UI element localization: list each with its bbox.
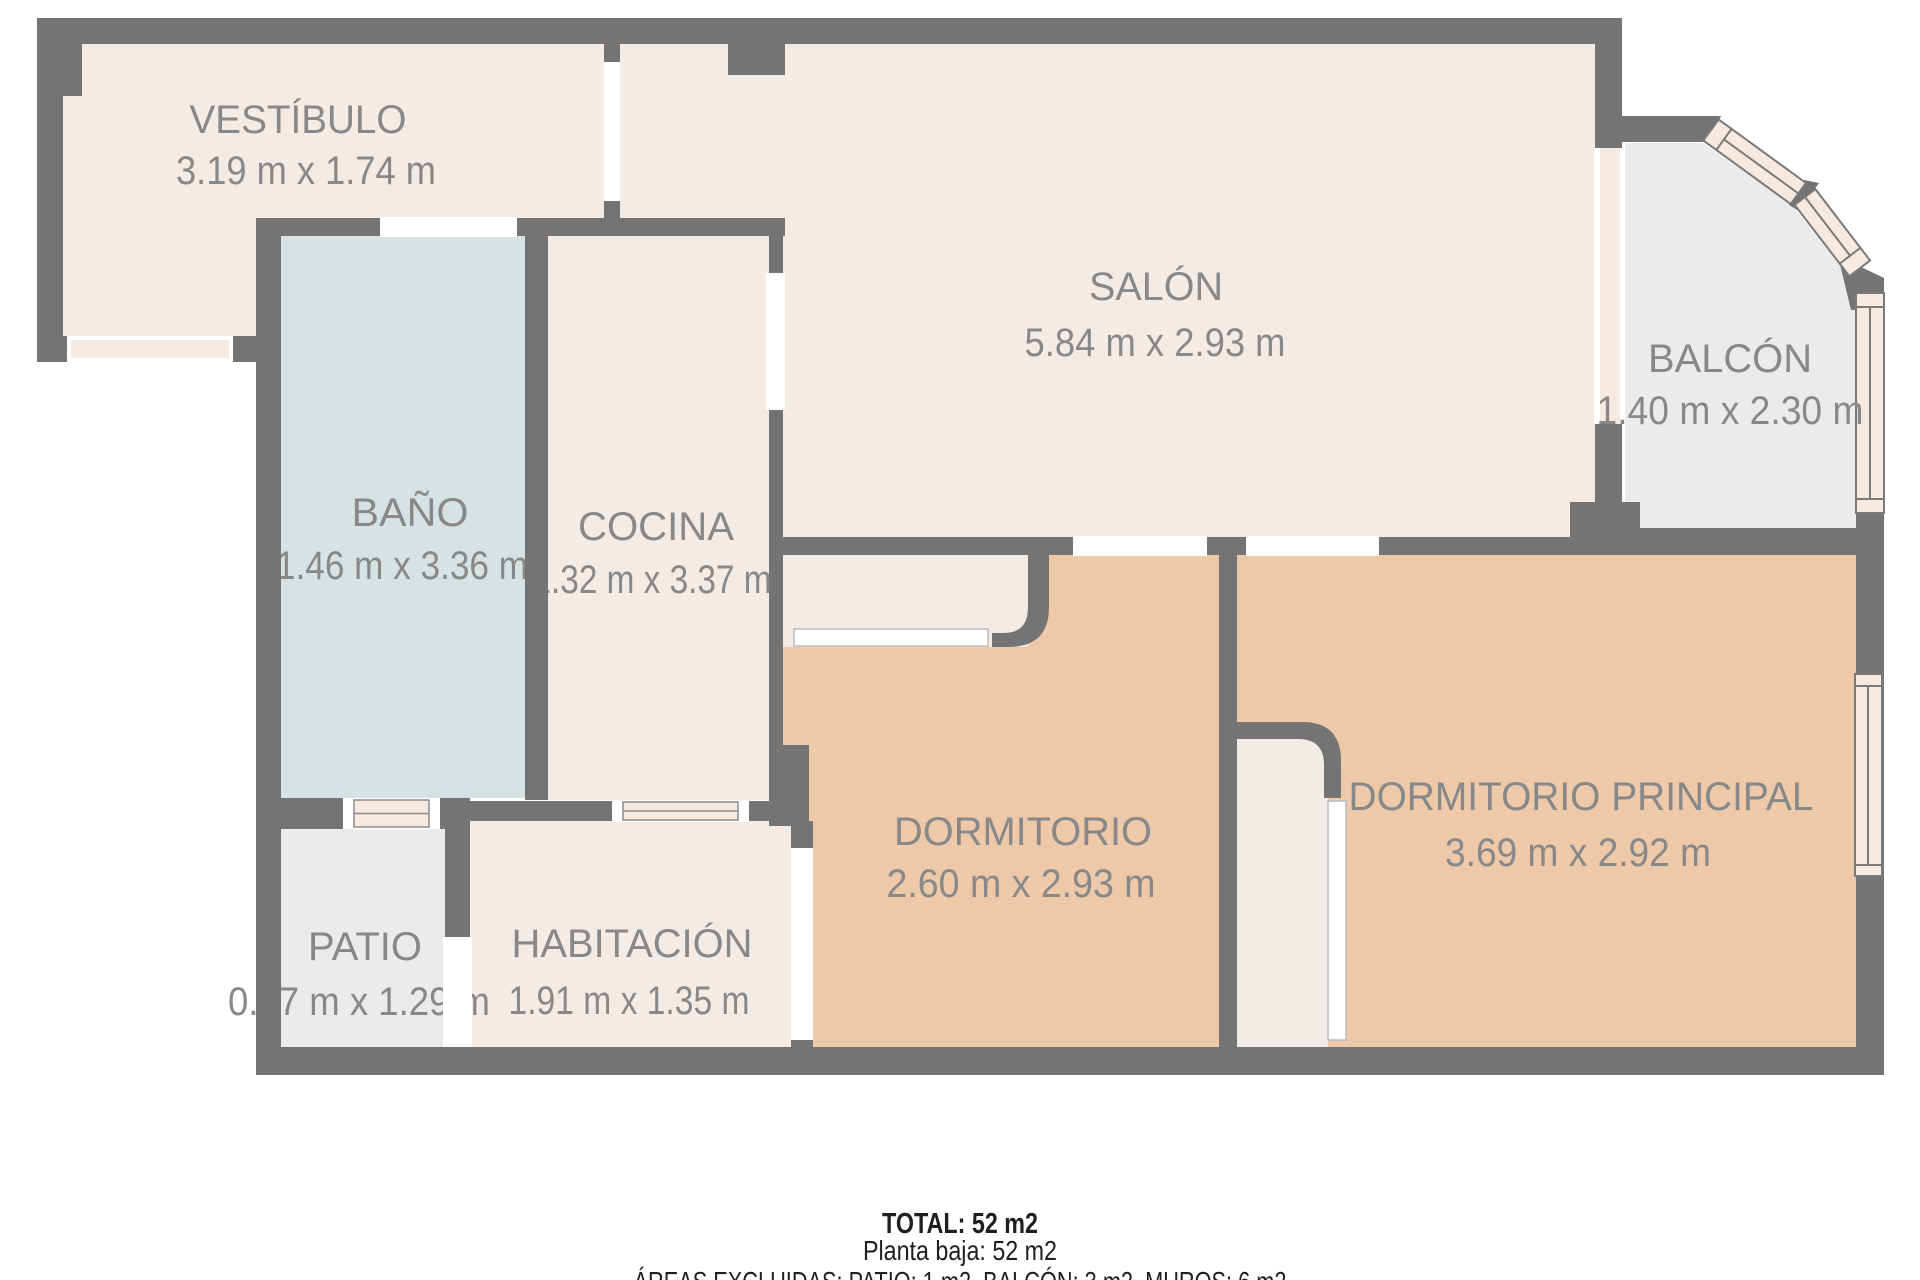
svg-text:1.91 m x 1.35 m: 1.91 m x 1.35 m bbox=[509, 979, 750, 1023]
svg-text:DORMITORIO PRINCIPAL: DORMITORIO PRINCIPAL bbox=[1349, 775, 1814, 819]
svg-text:DORMITORIO: DORMITORIO bbox=[894, 810, 1152, 854]
svg-text:Planta baja: 52 m2: Planta baja: 52 m2 bbox=[863, 1235, 1057, 1266]
svg-text:SALÓN: SALÓN bbox=[1089, 264, 1223, 309]
svg-text:1.40 m x 2.30 m: 1.40 m x 2.30 m bbox=[1597, 389, 1864, 433]
svg-text:ÁREAS EXCLUIDAS: PATIO: 1 m2,: ÁREAS EXCLUIDAS: PATIO: 1 m2, BALCÓN: 3 … bbox=[634, 1266, 1287, 1280]
svg-text:COCINA: COCINA bbox=[578, 505, 734, 549]
svg-text:HABITACIÓN: HABITACIÓN bbox=[512, 921, 753, 966]
svg-text:1.46 m x 3.36 m: 1.46 m x 3.36 m bbox=[276, 544, 528, 588]
svg-text:2.60 m x 2.93 m: 2.60 m x 2.93 m bbox=[887, 862, 1156, 906]
svg-text:PATIO: PATIO bbox=[308, 925, 422, 969]
svg-text:BAÑO: BAÑO bbox=[352, 490, 469, 535]
svg-text:VESTÍBULO: VESTÍBULO bbox=[190, 97, 407, 142]
svg-text:5.84 m x 2.93 m: 5.84 m x 2.93 m bbox=[1025, 321, 1286, 365]
svg-text:3.19 m x 1.74 m: 3.19 m x 1.74 m bbox=[176, 149, 436, 193]
svg-text:1.32 m x 3.37 m: 1.32 m x 3.37 m bbox=[533, 558, 772, 602]
svg-text:3.69 m x 2.92 m: 3.69 m x 2.92 m bbox=[1445, 831, 1711, 875]
svg-text:BALCÓN: BALCÓN bbox=[1648, 336, 1812, 381]
